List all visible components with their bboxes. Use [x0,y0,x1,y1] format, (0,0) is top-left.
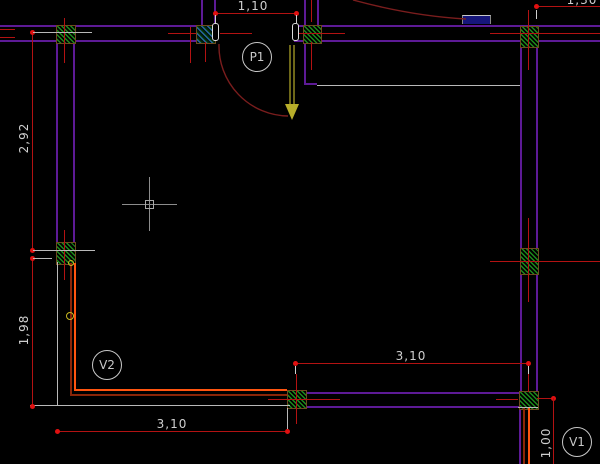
interior-edge-line [317,85,520,86]
centerline [528,10,529,70]
extension-tick [296,15,297,23]
door-jamb [212,23,219,41]
dimension-point [30,30,35,35]
window-v2[interactable]: V2 [0,0,600,464]
extension-line [33,32,92,33]
crosshair-pickbox [145,200,154,209]
dimension-line [32,258,33,406]
extension-tick [215,15,216,23]
column [287,390,307,409]
centerline [528,374,529,392]
column [519,391,539,410]
wall-line [304,41,306,83]
window-tag-label: V2 [99,358,115,372]
extension-tick [528,366,529,374]
dimension-text[interactable]: 1,00 [539,423,553,463]
dimension-line [57,431,287,432]
dimension-point [30,248,35,253]
centerline [205,42,206,62]
door-tag-circle[interactable]: P1 [242,42,272,72]
door-leaf-arrowhead [285,104,299,120]
extension-tick [295,366,296,374]
door-tag-label: P1 [250,50,265,64]
column [56,242,76,265]
crosshair-vertical [149,177,150,231]
centerline [311,42,312,70]
window-line [523,408,525,464]
dimension-line [536,6,600,7]
dimension-text[interactable]: 2,92 [17,118,31,158]
centerline [168,33,196,34]
vector-overlay [0,0,600,464]
window-line [528,408,530,464]
wall-line [294,25,600,27]
dimension-line [553,398,554,464]
window-face-line [30,405,290,406]
centerline [296,33,345,34]
extension-line [287,408,288,429]
centerline [220,33,252,34]
window-line [74,263,76,390]
window-line [70,394,287,396]
column [520,248,539,275]
window-handle-mark [67,313,74,320]
window-face-line [57,262,58,406]
wall-line [304,0,306,25]
centerline [64,18,65,63]
drawing-canvas[interactable]: P1 V2 V1 1,10 1,30 [0,0,600,464]
window-tag-circle[interactable]: V2 [92,350,122,380]
extension-line [33,250,95,251]
wall-line [520,40,522,392]
wall-line [519,408,521,464]
dimension-point [294,11,299,16]
wall-line [56,25,58,244]
dimension-point [55,429,60,434]
wall-line [317,0,319,25]
dimension-point [534,4,539,9]
dimension-text[interactable]: 1,10 [222,0,284,13]
wall-line [536,25,538,408]
window-line [70,263,72,395]
window-tag-circle[interactable]: V1 [562,427,592,457]
centerline [296,374,297,424]
window-line [74,389,287,391]
centerline [0,29,15,30]
dimension-point [293,361,298,366]
extension-line [33,258,52,259]
centerline [311,0,312,22]
centerline [0,37,15,38]
wall-line [287,392,536,394]
dimension-point [285,429,290,434]
wall-line [0,40,216,42]
centerlines [0,0,600,464]
wall-line [304,83,317,85]
wall-line [214,0,216,25]
crosshair-horizontal [122,204,177,205]
wall-line [73,40,75,244]
dimension-line [295,363,528,364]
dimension-point [213,11,218,16]
centerline [528,218,529,302]
centerline [64,230,65,280]
extension-tick [536,10,537,19]
centerline [490,261,600,262]
dimension-text[interactable]: 1,98 [17,310,31,350]
door-p1[interactable]: P1 [0,0,600,464]
walls[interactable] [0,0,600,464]
dimension-point [30,256,35,261]
dimension-point [30,404,35,409]
window-handle-mark [69,261,74,266]
wall-line [0,25,216,27]
door-swing-arc-partial [353,0,466,19]
centerline [190,27,191,63]
dimension-line [215,13,296,14]
centerline [490,33,600,34]
column [520,26,539,48]
window-face-line [518,407,538,408]
dimensions[interactable]: 1,10 1,30 2,92 1,98 3,10 3,10 [0,0,600,464]
dimension-text[interactable]: 3,10 [142,417,202,431]
dimension-connector [537,398,556,399]
wall-line [201,0,203,25]
window-v1[interactable]: V1 [0,0,600,464]
dimension-point [551,396,556,401]
door-stop [462,15,491,24]
centerline [268,399,340,400]
dimension-text[interactable]: 1,30 [562,0,600,7]
column [303,25,322,44]
dimension-line [32,32,33,250]
columns[interactable] [0,0,600,464]
centerline [496,399,518,400]
dimension-text[interactable]: 3,10 [381,349,441,363]
wall-line [287,406,536,408]
door-swing-arc [219,44,288,116]
door-jamb [292,23,299,41]
dimension-point [526,361,531,366]
crosshair-cursor [0,0,600,464]
wall-line [294,40,600,42]
column [56,25,76,44]
window-tag-label: V1 [569,435,585,449]
column [196,25,216,44]
